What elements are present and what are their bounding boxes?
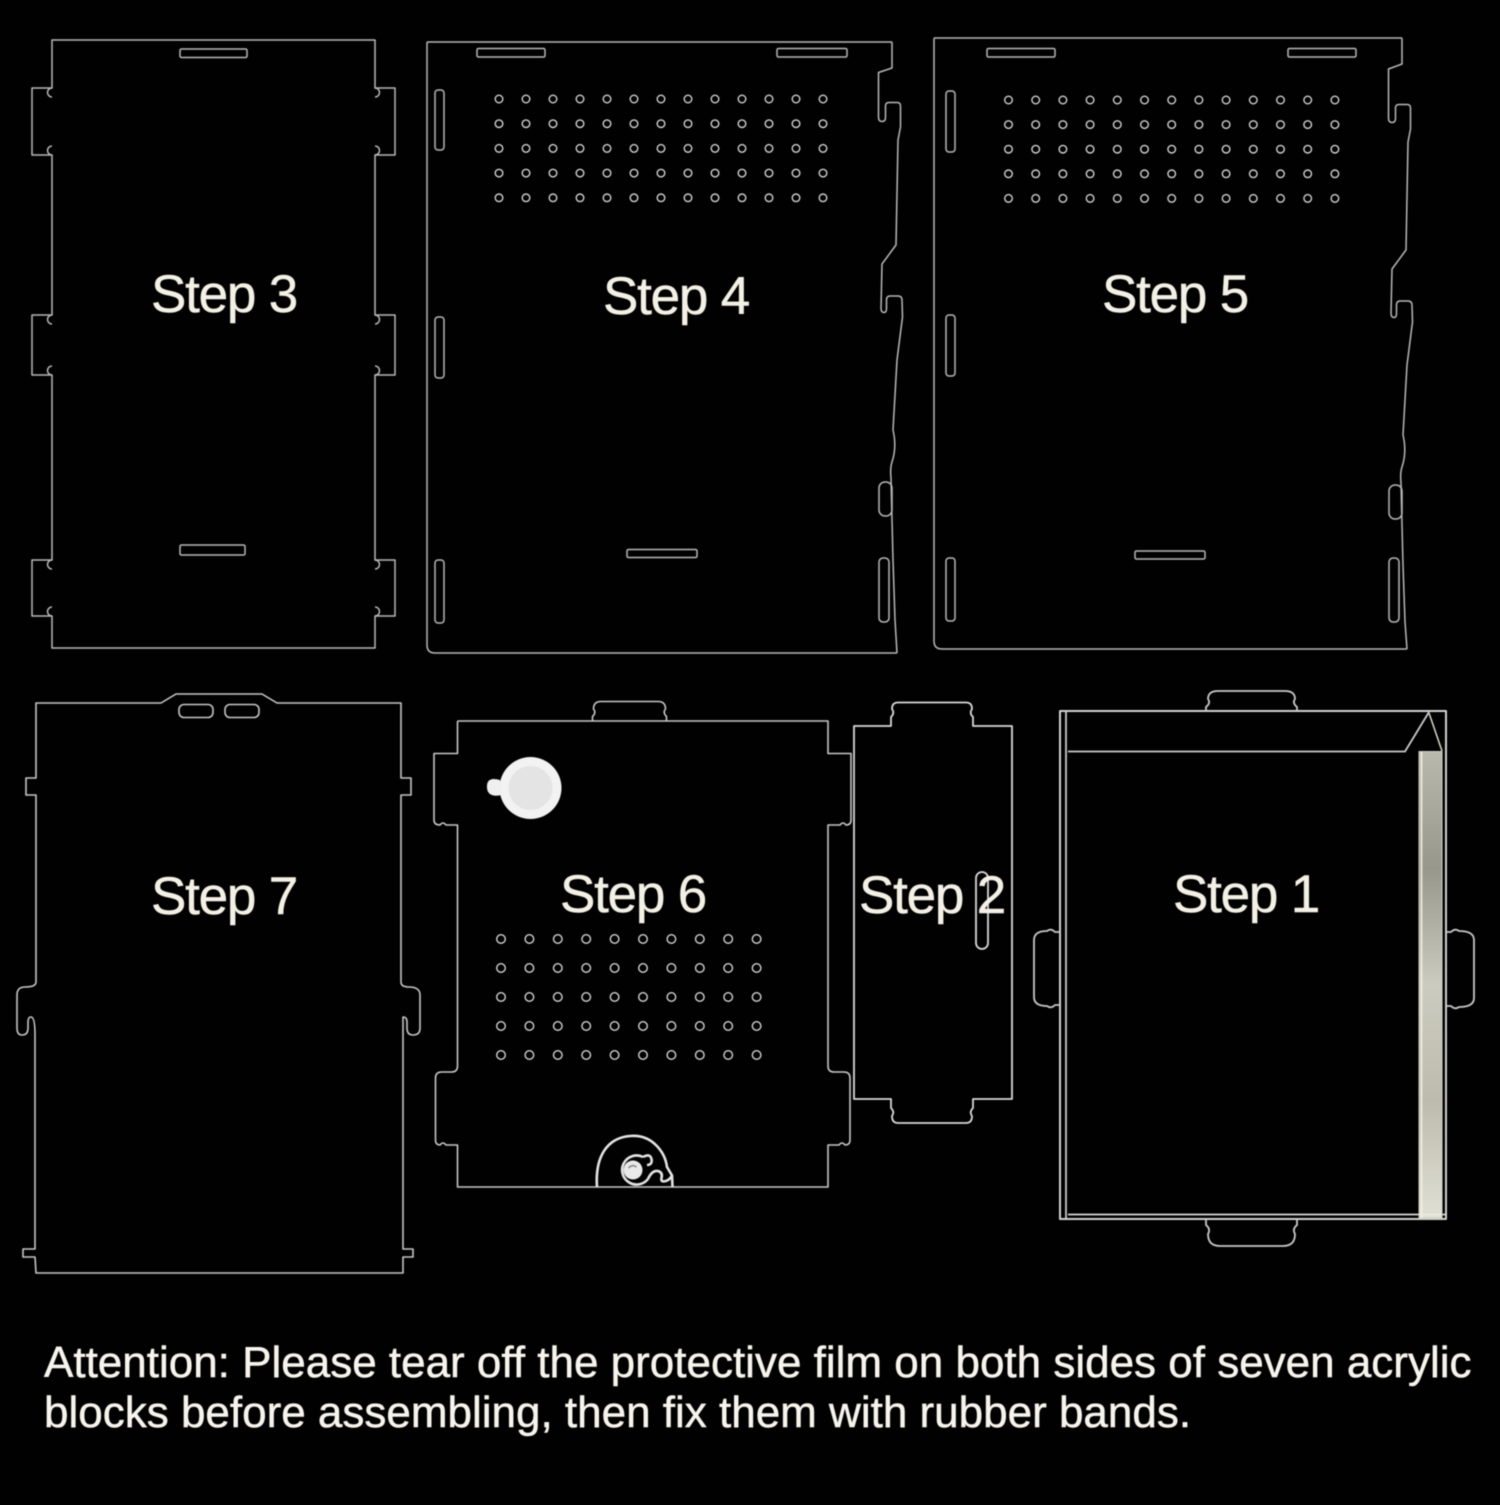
svg-text:Step 4: Step 4	[603, 267, 749, 326]
svg-text:Step 1: Step 1	[1173, 865, 1319, 924]
svg-text:Step 2: Step 2	[859, 866, 1005, 925]
svg-text:blocks before assembling, then: blocks before assembling, then fix them …	[44, 1388, 1191, 1437]
svg-text:Step 7: Step 7	[151, 867, 297, 926]
svg-text:Step 6: Step 6	[560, 865, 706, 924]
svg-text:Step 5: Step 5	[1102, 265, 1248, 324]
svg-text:Attention: Please tear off the: Attention: Please tear off the protectiv…	[44, 1338, 1472, 1387]
svg-text:Step 3: Step 3	[151, 265, 297, 324]
